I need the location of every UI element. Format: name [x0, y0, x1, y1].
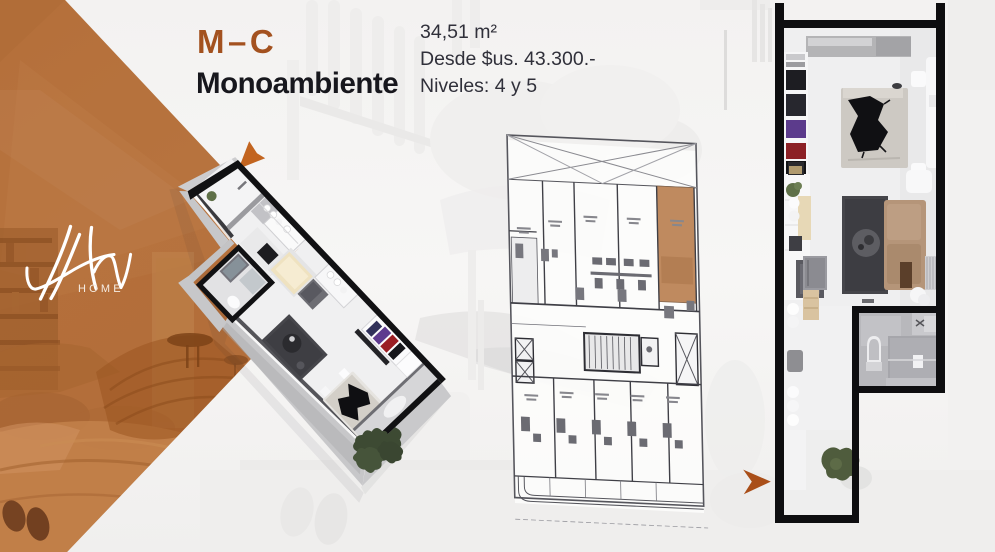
svg-text:34,51 m²: 34,51 m² [420, 21, 497, 43]
svg-text:Desde $us. 43.300.-: Desde $us. 43.300.- [420, 48, 596, 70]
svg-text:Niveles: 4 y 5: Niveles: 4 y 5 [420, 75, 537, 97]
svg-text:HOME: HOME [78, 283, 124, 295]
svg-text:M–C: M–C [197, 23, 277, 60]
svg-text:Monoambiente: Monoambiente [196, 67, 398, 100]
